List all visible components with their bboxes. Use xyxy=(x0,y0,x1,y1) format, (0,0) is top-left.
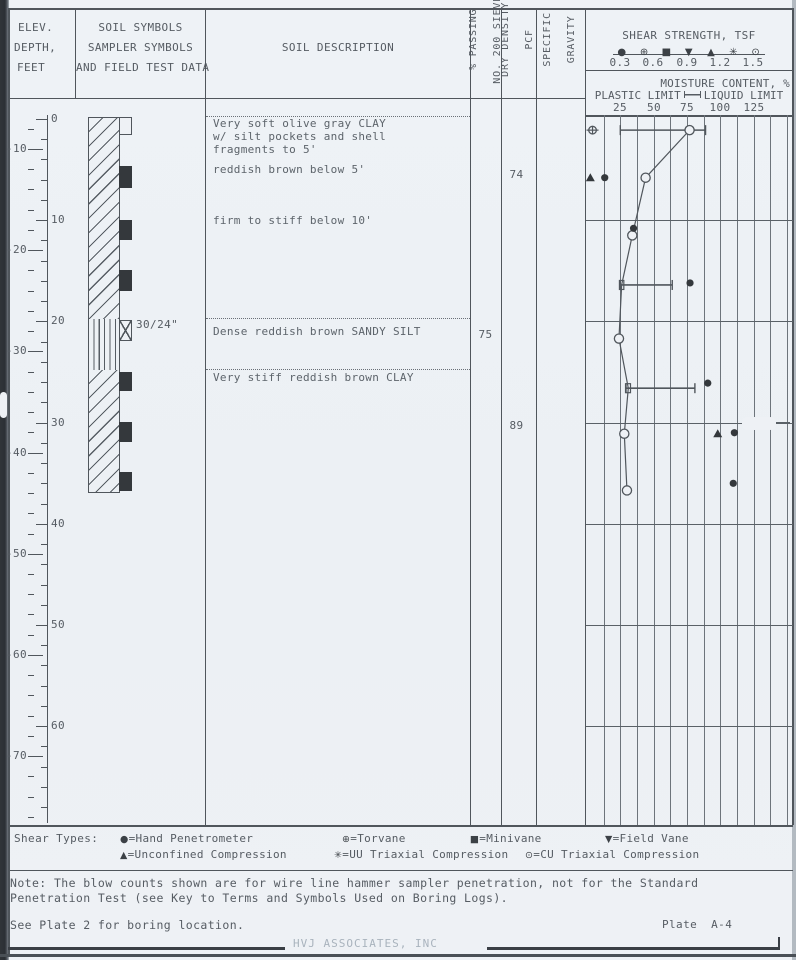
sampler-filled xyxy=(119,472,132,491)
header-specific-gravity: SPECIFIC GRAVITY xyxy=(530,12,590,94)
shear-point-hand-penetrometer xyxy=(630,225,637,232)
elevation-minor-tick xyxy=(28,675,34,676)
elevation-minor-tick xyxy=(28,695,34,696)
header-elev-line2: DEPTH, xyxy=(14,41,56,54)
elevation-major-tick xyxy=(28,453,43,454)
shear-legend-symbol: ● xyxy=(616,47,628,58)
depth-minor-tick xyxy=(41,281,47,282)
note-line1: Note: The blow counts shown are for wire… xyxy=(10,876,698,890)
lab-value-density: 89 xyxy=(502,419,531,432)
footer-rule-left xyxy=(8,947,285,950)
depth-label: 20 xyxy=(51,314,65,327)
shear-point-hand-penetrometer xyxy=(686,279,693,286)
col-line-density xyxy=(501,8,502,825)
soil-description-line: reddish brown below 5' xyxy=(213,163,465,176)
depth-minor-tick xyxy=(41,159,47,160)
legend-name: =UU Triaxial Compression xyxy=(342,848,508,861)
scan-bottom-edge xyxy=(0,954,796,957)
legend-item-hand-penetrometer: ●=Hand Penetrometer xyxy=(120,832,253,845)
depth-minor-tick xyxy=(41,483,47,484)
sampler-filled xyxy=(119,270,132,291)
depth-minor-tick xyxy=(41,605,47,606)
depth-label: 60 xyxy=(51,719,65,732)
soil-description-line: Very stiff reddish brown CLAY xyxy=(213,371,465,384)
legend-item-field-vane: ▼=Field Vane xyxy=(605,832,689,845)
legend-name: =Field Vane xyxy=(613,832,689,845)
soil-description: Very stiff reddish brown CLAY xyxy=(213,371,465,384)
sampler-filled xyxy=(119,166,132,188)
depth-label: 10 xyxy=(51,213,65,226)
header-gravity-line1: SPECIFIC xyxy=(542,12,553,67)
moisture-axis-tick: 100 xyxy=(705,101,735,114)
elevation-minor-tick xyxy=(28,412,34,413)
shear-point-hand-penetrometer xyxy=(704,380,711,387)
moisture-point xyxy=(620,429,629,438)
depth-label: 40 xyxy=(51,517,65,530)
depth-minor-tick xyxy=(41,402,47,403)
depth-minor-tick xyxy=(41,240,47,241)
moisture-point xyxy=(685,126,694,135)
soil-description-line: Very soft olive gray CLAY xyxy=(213,117,465,130)
elevation-label: -30 xyxy=(1,344,27,357)
elevation-label: -20 xyxy=(1,243,27,256)
depth-minor-tick xyxy=(41,767,47,768)
sampler-filled xyxy=(119,220,132,240)
legend-symbol: ● xyxy=(120,834,129,845)
legend-symbol: ▼ xyxy=(605,834,613,845)
shear-strength-title: SHEAR STRENGTH, TSF xyxy=(585,29,793,42)
moisture-axis-tick: 25 xyxy=(605,101,635,114)
header-soil-description: SOIL DESCRIPTION xyxy=(206,41,470,54)
depth-minor-tick xyxy=(41,139,47,140)
sampler-filled xyxy=(119,422,132,442)
ruler-line xyxy=(47,115,48,823)
soil-description: Very soft olive gray CLAYw/ silt pockets… xyxy=(213,117,465,156)
elevation-minor-tick xyxy=(28,716,34,717)
legend-name: =CU Triaxial Compression xyxy=(533,848,699,861)
elevation-minor-tick xyxy=(28,574,34,575)
elevation-label: -70 xyxy=(1,749,27,762)
elevation-minor-tick xyxy=(28,797,34,798)
soil-layer-clay xyxy=(88,117,120,319)
soil-description-line: w/ silt pockets and shell xyxy=(213,130,465,143)
elevation-minor-tick xyxy=(28,230,34,231)
moisture-point xyxy=(614,334,623,343)
see-plate-note: See Plate 2 for boring location. xyxy=(10,918,244,932)
shear-types-label: Shear Types: xyxy=(14,832,98,845)
elevation-minor-tick xyxy=(28,311,34,312)
elevation-minor-tick xyxy=(28,331,34,332)
legend-name: =Hand Penetrometer xyxy=(129,832,254,845)
col-line-elev xyxy=(75,8,76,98)
elevation-minor-tick xyxy=(28,291,34,292)
shear-point-hand-penetrometer xyxy=(731,429,738,436)
stratum-boundary-dotted xyxy=(206,318,470,319)
elevation-minor-tick xyxy=(28,493,34,494)
elevation-major-tick xyxy=(28,250,43,251)
elevation-major-tick xyxy=(28,756,43,757)
depth-major-tick xyxy=(36,625,47,626)
company-watermark: HVJ ASSOCIATES, INC xyxy=(293,937,438,950)
legend-item-unconfined-compression: ▲=Unconfined Compression xyxy=(120,848,287,861)
elevation-minor-tick xyxy=(28,210,34,211)
col-line-passing xyxy=(470,8,471,825)
header-elev-line1: ELEV. xyxy=(18,21,53,34)
lab-value-passing: 75 xyxy=(471,328,500,341)
legend-name: =Torvane xyxy=(350,832,405,845)
legend-symbol: ■ xyxy=(470,834,479,845)
elevation-label: -40 xyxy=(1,446,27,459)
moisture-content-line xyxy=(619,130,690,490)
elevation-minor-tick xyxy=(28,534,34,535)
depth-label: 0 xyxy=(51,112,58,125)
elevation-label: -60 xyxy=(1,648,27,661)
depth-major-tick xyxy=(36,423,47,424)
depth-minor-tick xyxy=(41,564,47,565)
elevation-minor-tick xyxy=(28,614,34,615)
table-bottom xyxy=(8,825,793,827)
depth-minor-tick xyxy=(41,544,47,545)
depth-label: 50 xyxy=(51,618,65,631)
note-line2: Penetration Test (see Key to Terms and S… xyxy=(10,891,508,905)
depth-major-tick xyxy=(36,220,47,221)
shear-point-hand-penetrometer xyxy=(601,174,608,181)
elevation-label: -10 xyxy=(1,142,27,155)
depth-minor-tick xyxy=(41,504,47,505)
moisture-point xyxy=(628,231,637,240)
depth-major-tick xyxy=(36,119,47,120)
legend-item-minivane: ■=Minivane xyxy=(470,832,542,845)
soil-description: reddish brown below 5' xyxy=(213,163,465,176)
elevation-label: -50 xyxy=(1,547,27,560)
elevation-minor-tick xyxy=(28,473,34,474)
elevation-minor-tick xyxy=(28,736,34,737)
shear-header-bottom xyxy=(585,70,793,71)
elevation-major-tick xyxy=(28,351,43,352)
depth-plot xyxy=(585,115,793,825)
depth-minor-tick xyxy=(41,443,47,444)
shear-legend-symbol: ■ xyxy=(661,47,673,58)
depth-major-tick xyxy=(36,524,47,525)
depth-minor-tick xyxy=(41,645,47,646)
header-symbols-line2: SAMPLER SYMBOLS xyxy=(76,41,205,54)
header-symbols-line3: AND FIELD TEST DATA xyxy=(76,61,205,74)
header-gravity-line2: GRAVITY xyxy=(566,15,577,63)
sampler-filled xyxy=(119,372,132,391)
elevation-minor-tick xyxy=(28,169,34,170)
depth-minor-tick xyxy=(41,382,47,383)
moisture-axis-tick: 50 xyxy=(639,101,669,114)
legend-bottom xyxy=(8,870,793,871)
elevation-minor-tick xyxy=(28,270,34,271)
depth-minor-tick xyxy=(41,746,47,747)
depth-minor-tick xyxy=(41,362,47,363)
footer-rule-right xyxy=(487,947,780,950)
legend-item-uu-triaxial-compression: ✳=UU Triaxial Compression xyxy=(334,848,508,861)
depth-minor-tick xyxy=(41,686,47,687)
moisture-axis-tick: 75 xyxy=(672,101,702,114)
soil-description-line: Dense reddish brown SANDY SILT xyxy=(213,325,465,338)
depth-major-tick xyxy=(36,726,47,727)
elevation-major-tick xyxy=(28,655,43,656)
boring-log-sheet: ELEV. DEPTH, FEET SOIL SYMBOLS SAMPLER S… xyxy=(0,0,796,960)
col-line-gravity xyxy=(536,8,537,825)
moisture-point xyxy=(641,173,650,182)
shear-legend-symbol: ⊕ xyxy=(638,47,650,58)
shear-legend-symbol: ⊙ xyxy=(750,47,762,58)
depth-major-tick xyxy=(36,321,47,322)
depth-minor-tick xyxy=(41,342,47,343)
elevation-minor-tick xyxy=(28,372,34,373)
elevation-minor-tick xyxy=(28,189,34,190)
header-symbols-line1: SOIL SYMBOLS xyxy=(76,21,205,34)
shear-legend-symbol: ▲ xyxy=(705,47,717,58)
legend-name: =Minivane xyxy=(479,832,541,845)
shear-legend-symbol: ▼ xyxy=(683,47,695,58)
elevation-minor-tick xyxy=(28,635,34,636)
depth-minor-tick xyxy=(41,200,47,201)
depth-minor-tick xyxy=(41,180,47,181)
legend-item-torvane: ⊕=Torvane xyxy=(342,832,406,845)
elevation-minor-tick xyxy=(28,513,34,514)
border-top xyxy=(8,8,793,10)
col-line-description xyxy=(205,8,206,825)
soil-description: firm to stiff below 10' xyxy=(213,214,465,227)
sampler-blow-count: 30/24" xyxy=(136,318,178,331)
soil-description: Dense reddish brown SANDY SILT xyxy=(213,325,465,338)
depth-minor-tick xyxy=(41,585,47,586)
elevation-major-tick xyxy=(28,149,43,150)
legend-symbol: ▲ xyxy=(120,850,128,861)
elevation-minor-tick xyxy=(28,817,34,818)
elevation-major-tick xyxy=(28,554,43,555)
moisture-axis-tick: 125 xyxy=(739,101,769,114)
lab-value-density: 74 xyxy=(502,168,531,181)
depth-minor-tick xyxy=(41,261,47,262)
soil-description-line: fragments to 5' xyxy=(213,143,465,156)
footer-corner-tick xyxy=(778,937,780,948)
shear-point-unconfined xyxy=(586,173,595,181)
elevation-minor-tick xyxy=(28,776,34,777)
soil-description-line: firm to stiff below 10' xyxy=(213,214,465,227)
depth-label: 30 xyxy=(51,416,65,429)
shear-point-hand-penetrometer xyxy=(730,480,737,487)
depth-minor-tick xyxy=(41,463,47,464)
header-elev-line3: FEET xyxy=(17,61,45,74)
header-bottom xyxy=(8,98,585,99)
legend-name: =Unconfined Compression xyxy=(128,848,287,861)
elevation-minor-tick xyxy=(28,129,34,130)
elevation-minor-tick xyxy=(28,392,34,393)
soil-layer-clay xyxy=(88,370,120,493)
sampler-xbox xyxy=(119,320,132,340)
scan-notch xyxy=(0,392,7,418)
depth-minor-tick xyxy=(41,807,47,808)
soil-layer-silt xyxy=(88,319,120,370)
stratum-boundary-dotted xyxy=(206,369,470,370)
shear-legend-symbol: ✳ xyxy=(728,47,740,58)
plate-number: Plate A-4 xyxy=(662,918,732,931)
moisture-point xyxy=(622,486,631,495)
legend-item-cu-triaxial-compression: ⊙=CU Triaxial Compression xyxy=(525,848,699,861)
depth-minor-tick xyxy=(41,706,47,707)
elevation-minor-tick xyxy=(28,432,34,433)
depth-minor-tick xyxy=(41,787,47,788)
shear-point-unconfined xyxy=(713,429,722,437)
limit-bar-icon xyxy=(684,91,701,98)
depth-minor-tick xyxy=(41,665,47,666)
sampler-open xyxy=(119,117,132,135)
elevation-minor-tick xyxy=(28,594,34,595)
depth-minor-tick xyxy=(41,301,47,302)
